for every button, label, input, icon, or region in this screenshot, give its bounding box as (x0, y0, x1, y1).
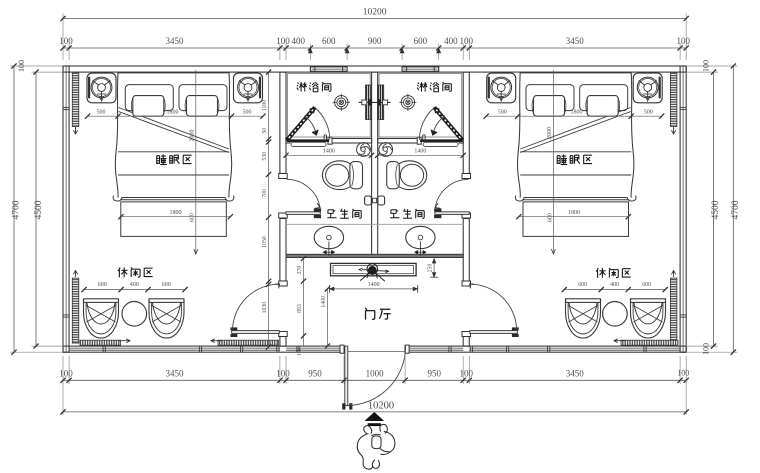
svg-text:3450: 3450 (166, 369, 185, 379)
svg-text:1400: 1400 (323, 148, 335, 154)
svg-text:3450: 3450 (166, 36, 185, 46)
svg-text:500: 500 (243, 109, 252, 115)
svg-text:600: 600 (322, 36, 336, 46)
svg-text:4500: 4500 (34, 200, 44, 219)
svg-text:100: 100 (459, 369, 473, 379)
svg-text:600: 600 (414, 36, 428, 46)
svg-text:10200: 10200 (363, 8, 387, 18)
svg-text:2000: 2000 (547, 127, 553, 139)
svg-text:400: 400 (444, 36, 458, 46)
svg-text:1000: 1000 (366, 369, 385, 379)
svg-text:100: 100 (459, 36, 473, 46)
svg-text:893: 893 (297, 304, 303, 313)
svg-text:1800: 1800 (167, 109, 179, 115)
svg-text:1030: 1030 (262, 302, 268, 314)
svg-text:4700: 4700 (731, 200, 741, 219)
svg-text:100: 100 (276, 369, 290, 379)
svg-text:1800: 1800 (170, 210, 182, 216)
svg-text:100: 100 (677, 369, 689, 378)
svg-text:1050: 1050 (262, 236, 268, 248)
svg-text:10200: 10200 (368, 401, 394, 412)
svg-text:100: 100 (702, 60, 711, 72)
svg-text:100: 100 (59, 36, 73, 46)
svg-text:1400: 1400 (321, 296, 327, 308)
svg-text:600: 600 (98, 282, 107, 288)
svg-text:1800: 1800 (568, 210, 580, 216)
svg-text:100: 100 (59, 369, 73, 379)
svg-text:600: 600 (190, 213, 196, 222)
svg-text:950: 950 (308, 369, 322, 379)
svg-text:500: 500 (644, 109, 653, 115)
svg-text:600: 600 (548, 213, 554, 222)
svg-text:100: 100 (17, 60, 26, 72)
svg-text:1100: 1100 (262, 100, 268, 111)
svg-text:250: 250 (428, 264, 434, 273)
svg-text:4700: 4700 (12, 200, 22, 219)
svg-text:4500: 4500 (711, 200, 721, 219)
svg-text:600: 600 (162, 282, 171, 288)
svg-text:500: 500 (97, 109, 106, 115)
svg-text:1400: 1400 (368, 282, 380, 288)
svg-text:400: 400 (291, 36, 305, 46)
svg-text:100: 100 (702, 343, 711, 355)
svg-text:600: 600 (578, 282, 587, 288)
svg-text:100: 100 (276, 36, 290, 46)
svg-text:50: 50 (262, 128, 268, 134)
svg-text:370: 370 (297, 266, 303, 275)
svg-text:500: 500 (498, 109, 507, 115)
svg-text:900: 900 (368, 36, 382, 46)
svg-text:600: 600 (642, 282, 651, 288)
svg-text:530: 530 (262, 152, 268, 161)
svg-text:400: 400 (610, 282, 619, 288)
svg-text:100: 100 (297, 347, 303, 356)
svg-text:950: 950 (427, 369, 441, 379)
svg-text:100: 100 (676, 36, 690, 46)
svg-text:1800: 1800 (571, 109, 583, 115)
svg-text:700: 700 (262, 189, 268, 198)
svg-text:3450: 3450 (566, 369, 585, 379)
svg-text:1400: 1400 (414, 148, 426, 154)
svg-text:2000: 2000 (189, 130, 195, 142)
svg-text:3450: 3450 (566, 36, 585, 46)
svg-text:400: 400 (130, 282, 139, 288)
